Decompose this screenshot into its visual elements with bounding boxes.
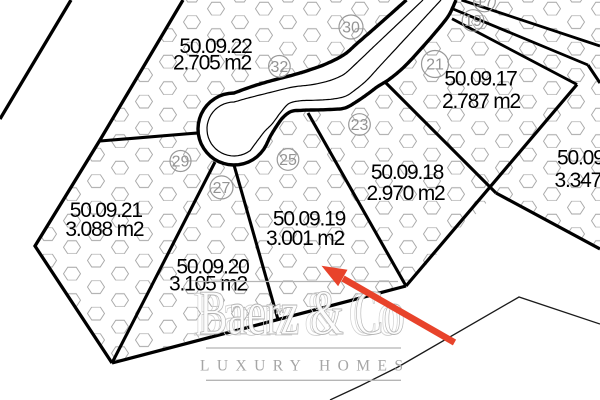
svg-text:50.09.17: 50.09.17 <box>444 68 517 91</box>
svg-text:32: 32 <box>271 59 289 76</box>
svg-text:2.705 m2: 2.705 m2 <box>173 52 251 75</box>
svg-text:Baerz & Co: Baerz & Co <box>199 278 405 348</box>
svg-text:50.09.18: 50.09.18 <box>371 161 444 184</box>
svg-text:2.787 m2: 2.787 m2 <box>442 90 520 113</box>
svg-text:23: 23 <box>351 117 369 134</box>
svg-text:25: 25 <box>279 152 297 169</box>
svg-text:17: 17 <box>476 0 494 11</box>
svg-text:2.970 m2: 2.970 m2 <box>367 182 445 205</box>
svg-text:50.09.1: 50.09.1 <box>557 147 600 170</box>
svg-text:3.088 m2: 3.088 m2 <box>65 218 143 241</box>
svg-text:3.347 m: 3.347 m <box>555 169 600 192</box>
svg-text:30: 30 <box>342 20 360 37</box>
svg-text:21: 21 <box>426 57 444 74</box>
svg-text:19: 19 <box>464 13 482 30</box>
svg-text:29: 29 <box>172 154 190 171</box>
svg-text:3.001 m2: 3.001 m2 <box>266 227 344 250</box>
svg-text:27: 27 <box>213 180 231 197</box>
